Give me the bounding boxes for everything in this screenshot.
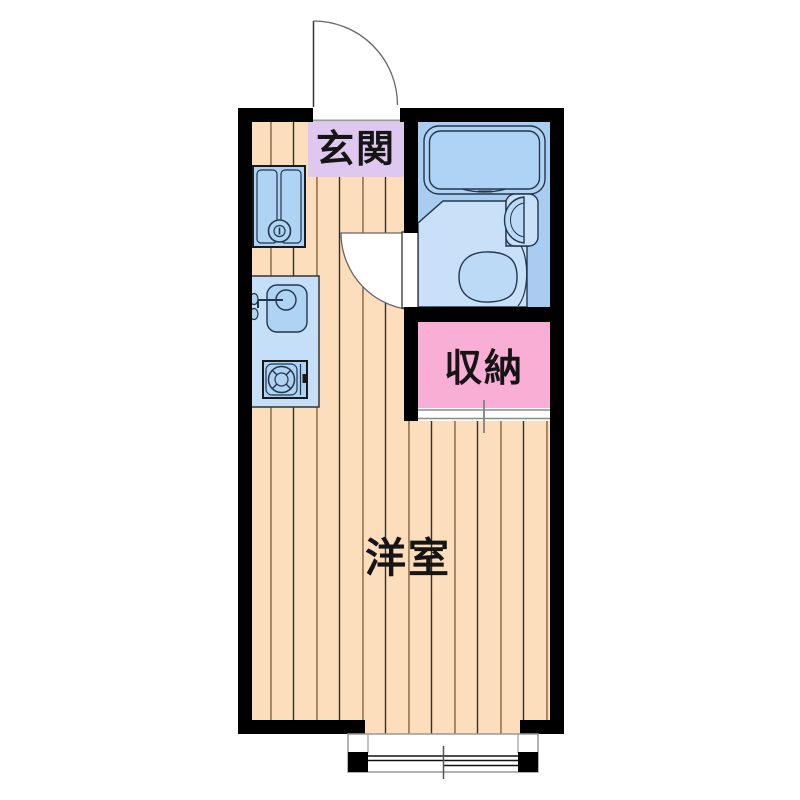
wall-right bbox=[550, 108, 564, 734]
bathtub-icon bbox=[424, 126, 545, 194]
wall-bath-bottom bbox=[404, 307, 550, 322]
wall-left bbox=[238, 108, 252, 734]
floorplan-canvas: 玄関 収納 洋室 bbox=[0, 0, 800, 800]
wall-partition-lower bbox=[404, 307, 418, 421]
floorplan-drawing: 玄関 収納 洋室 bbox=[0, 0, 800, 800]
main-room-label: 洋室 bbox=[365, 535, 451, 581]
wall-top-right bbox=[400, 108, 564, 122]
washbasin-icon bbox=[505, 194, 539, 246]
storage-label: 収納 bbox=[444, 348, 524, 390]
washing-machine-icon bbox=[253, 166, 305, 247]
bathroom-fixtures bbox=[418, 126, 545, 307]
wall-partition-upper bbox=[404, 122, 418, 233]
kitchen-counter bbox=[250, 276, 319, 407]
gas-stove-icon bbox=[263, 361, 307, 398]
wall-bottom-right bbox=[520, 720, 564, 734]
entrance-swing-door-icon bbox=[313, 21, 400, 122]
kitchen-sink-icon bbox=[267, 285, 307, 332]
sliding-window-icon bbox=[348, 734, 538, 779]
entrance-label: 玄関 bbox=[316, 129, 396, 171]
wall-bottom-left bbox=[238, 720, 365, 734]
